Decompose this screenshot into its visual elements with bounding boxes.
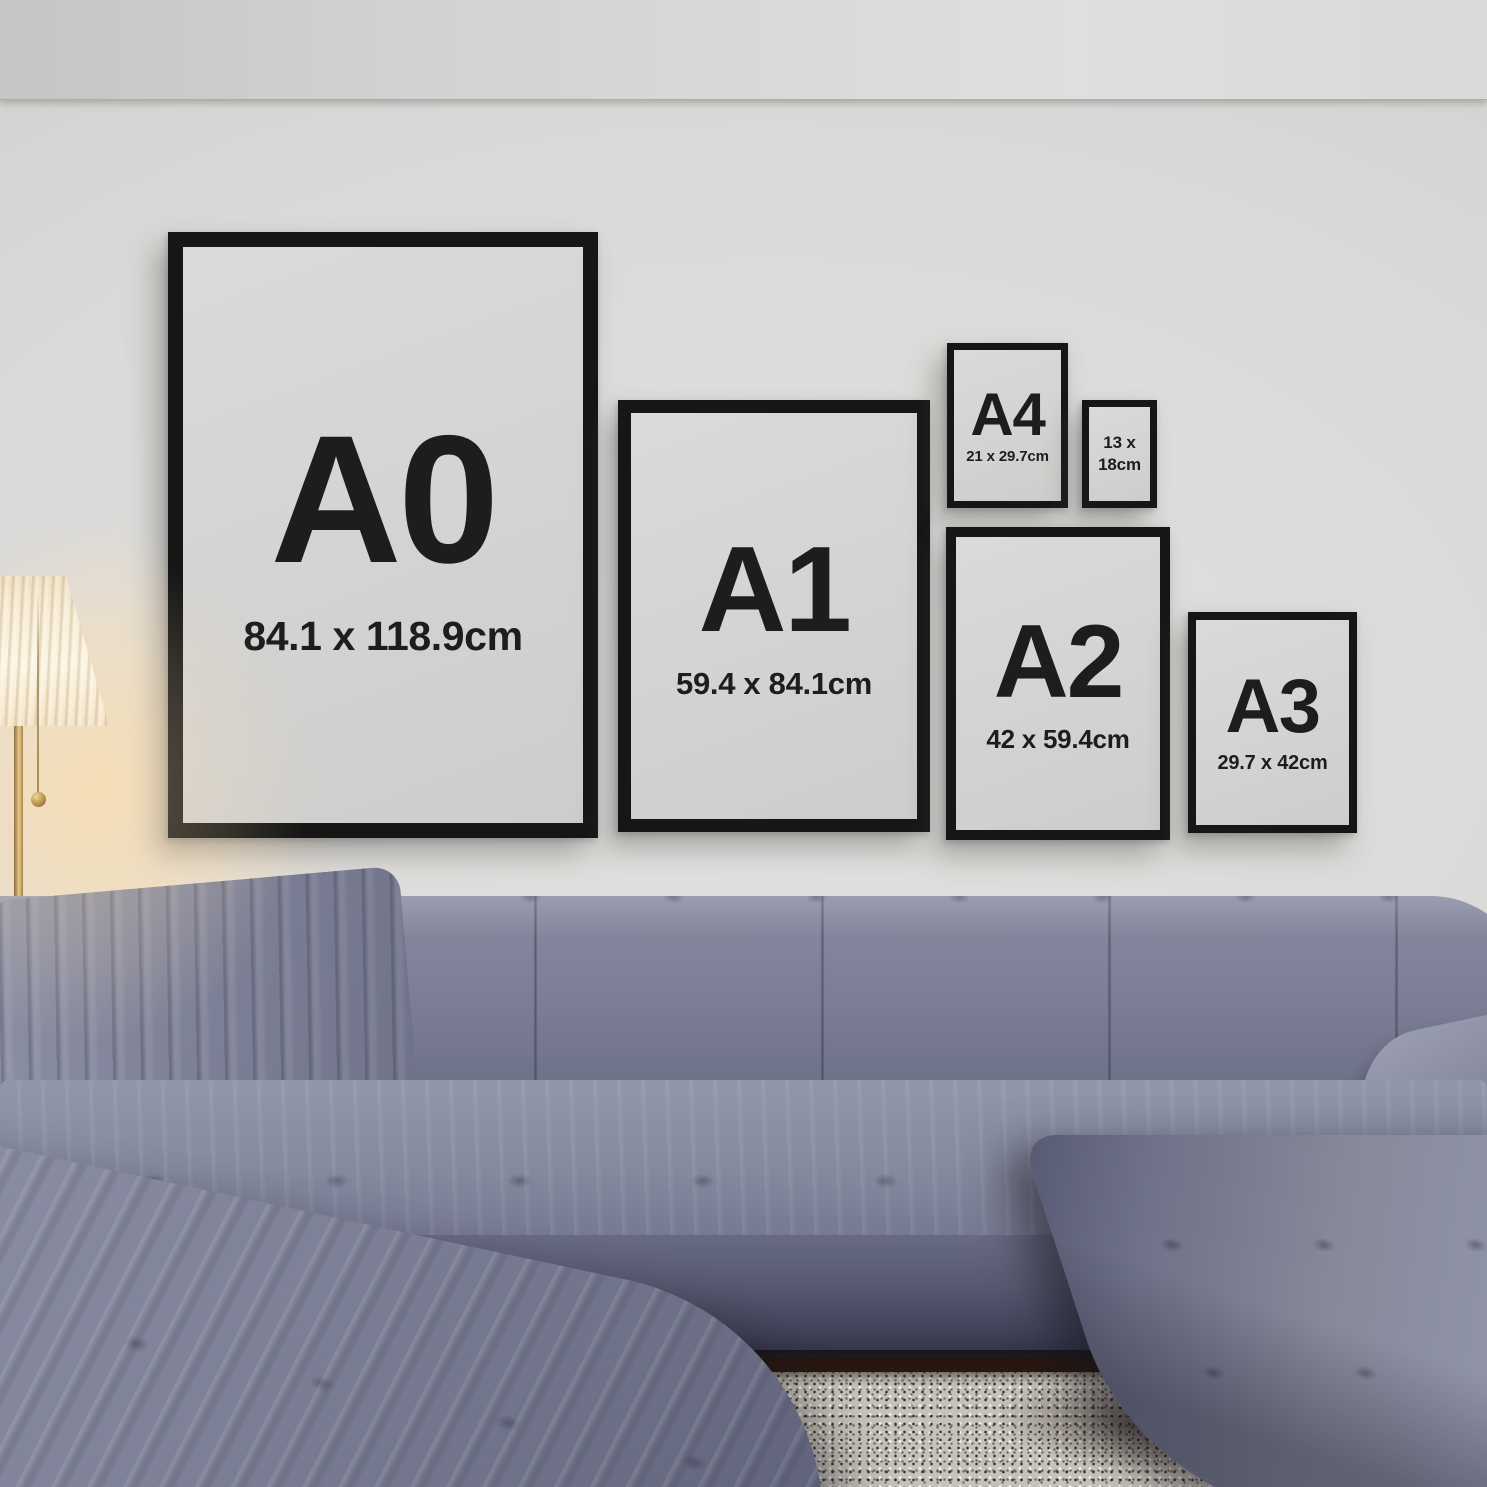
- frame-a2: A2 42 x 59.4cm: [946, 527, 1170, 840]
- frame-a0: A0 84.1 x 118.9cm: [168, 232, 598, 838]
- shag-rug: [0, 1372, 1487, 1487]
- frame-a3: A3 29.7 x 42cm: [1188, 612, 1357, 833]
- frame-a4: A4 21 x 29.7cm: [947, 343, 1068, 508]
- frame-13x18: 13 x 18cm: [1082, 400, 1157, 508]
- living-room-scene: A0 84.1 x 118.9cm A1 59.4 x 84.1cm A4 21…: [0, 0, 1487, 1487]
- frame-a1: A1 59.4 x 84.1cm: [618, 400, 930, 832]
- size-dimensions-a1: 59.4 x 84.1cm: [676, 666, 872, 702]
- size-label-a1: A1: [698, 530, 849, 650]
- floor-lamp-pole: [14, 718, 23, 1048]
- floor-lamp-pull-chain-ball: [31, 792, 46, 807]
- poster-a3: A3 29.7 x 42cm: [1196, 620, 1349, 825]
- size-dimensions-a4: 21 x 29.7cm: [966, 448, 1049, 465]
- poster-a2: A2 42 x 59.4cm: [956, 537, 1160, 830]
- size-dimensions-a3: 29.7 x 42cm: [1217, 752, 1327, 775]
- ceiling: [0, 0, 1487, 100]
- size-label-a2: A2: [994, 612, 1123, 714]
- floor-lamp-joint: [11, 952, 26, 974]
- size-label-a0: A0: [270, 410, 495, 588]
- size-label-a3: A3: [1225, 670, 1319, 744]
- poster-a1: A1 59.4 x 84.1cm: [631, 413, 917, 819]
- size-dimensions-a0: 84.1 x 118.9cm: [243, 613, 522, 660]
- size-dimensions-13x18: 13 x 18cm: [1097, 432, 1143, 476]
- poster-a0: A0 84.1 x 118.9cm: [183, 247, 583, 823]
- floor-lamp-pull-chain: [37, 592, 39, 794]
- poster-13x18: 13 x 18cm: [1089, 407, 1150, 501]
- size-label-a4: A4: [970, 386, 1044, 445]
- poster-a4: A4 21 x 29.7cm: [954, 350, 1061, 501]
- size-dimensions-a2: 42 x 59.4cm: [986, 724, 1129, 755]
